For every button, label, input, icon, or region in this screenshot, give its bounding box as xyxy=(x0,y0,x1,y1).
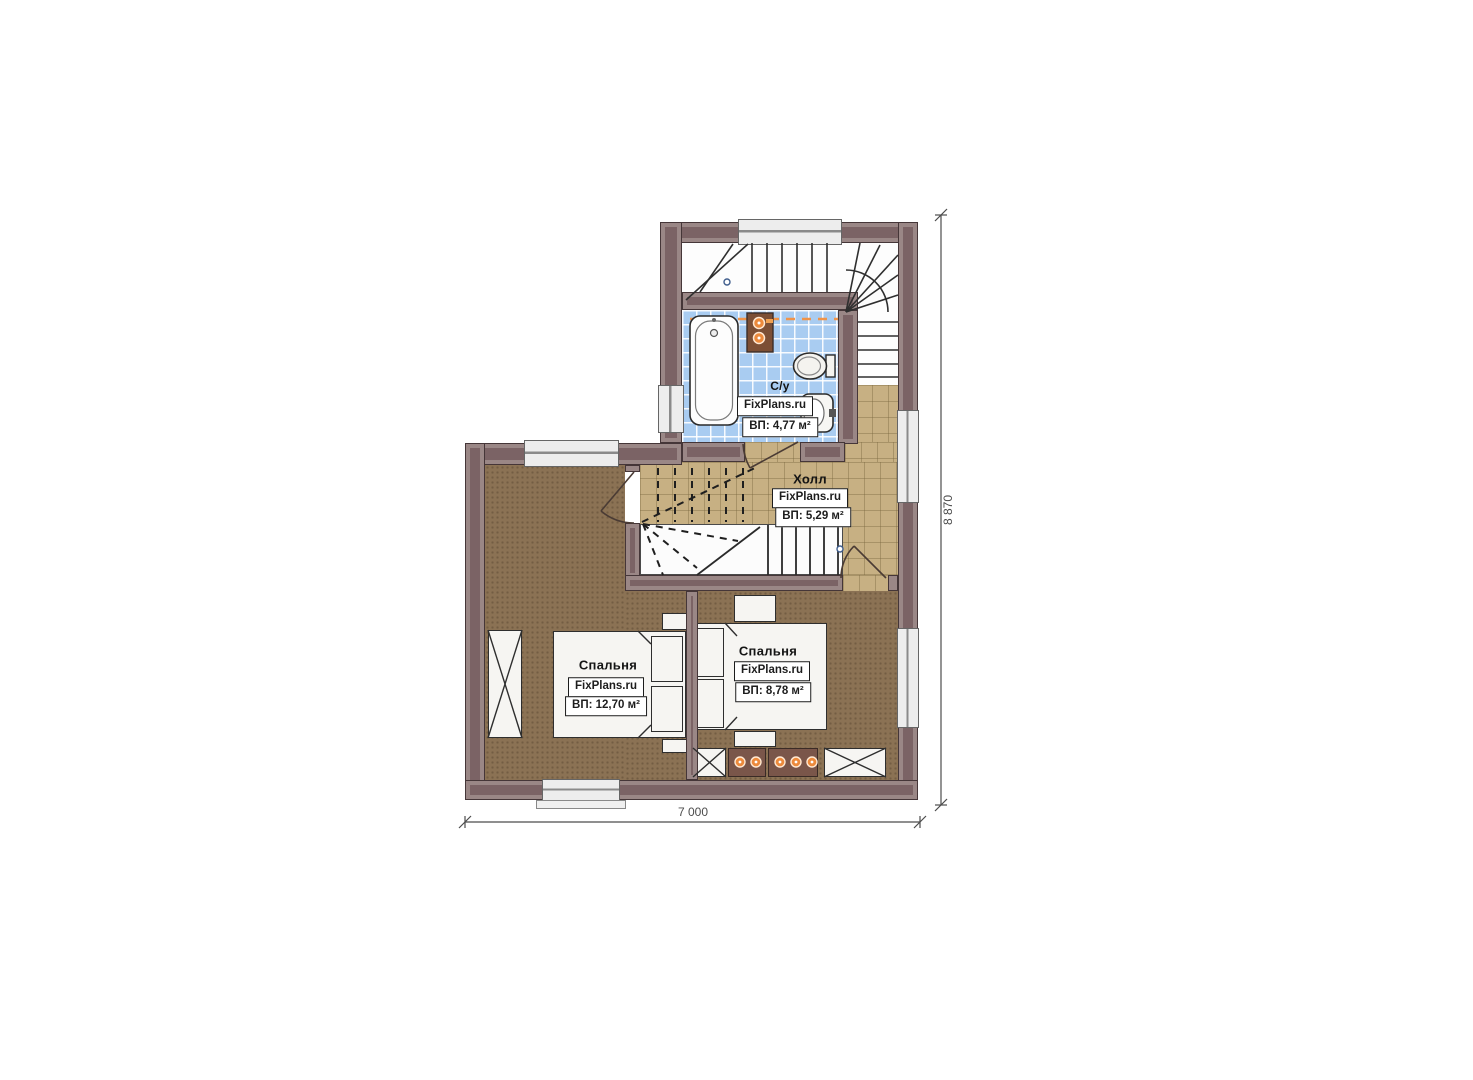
bed-pillow xyxy=(697,628,724,677)
window xyxy=(897,410,919,503)
bedroom-left-label: Спальня xyxy=(579,658,637,673)
wall-left-lower xyxy=(465,443,485,800)
hall-label: Холл xyxy=(793,472,827,487)
wall-bottom xyxy=(465,780,918,800)
bedroom-left-area: ВП: 12,70 м² xyxy=(565,696,647,716)
hall-floor-side xyxy=(845,442,898,462)
bathroom-label: С/у xyxy=(770,379,790,393)
bed-pillow xyxy=(697,679,724,728)
window-sill xyxy=(536,800,626,809)
window xyxy=(658,385,684,433)
dresser xyxy=(768,748,818,777)
wall-bedroom-separator xyxy=(686,591,698,780)
bedside-table xyxy=(734,595,776,622)
wall-bathroom-bottom-b xyxy=(800,442,845,462)
bedroom-right-watermark: FixPlans.ru xyxy=(734,661,810,681)
bed-pillow xyxy=(651,636,683,682)
bed-pillow xyxy=(651,686,683,732)
wardrobe xyxy=(488,630,522,738)
wall-bathroom-right xyxy=(838,310,858,444)
bedside-table xyxy=(662,739,688,753)
bathroom-watermark: FixPlans.ru xyxy=(737,396,813,416)
wall-hall-bottom-a xyxy=(625,575,843,591)
wall-hall-bottom-b xyxy=(888,575,898,591)
hall-watermark: FixPlans.ru xyxy=(772,488,848,508)
bathroom-area: ВП: 4,77 м² xyxy=(742,417,818,437)
staircase-middle-lower-flight xyxy=(640,524,843,575)
wall-bathroom-bottom-a xyxy=(682,442,745,462)
window xyxy=(738,219,842,245)
window xyxy=(542,779,620,801)
bedside-table xyxy=(734,731,776,747)
bedside-table xyxy=(662,613,688,630)
staircase-upper-floor xyxy=(682,243,898,292)
hall-floor-door2 xyxy=(843,575,888,591)
wall-bathroom-top xyxy=(682,292,858,310)
window xyxy=(524,440,619,467)
dimension-height: 8 870 xyxy=(941,495,955,525)
floor-plan-canvas: С/у FixPlans.ru ВП: 4,77 м² Холл FixPlan… xyxy=(0,0,1473,1080)
bedroom-right-area: ВП: 8,78 м² xyxy=(735,682,811,702)
staircase-upper-floor-right xyxy=(858,292,898,385)
wall-stair-left-a xyxy=(625,465,640,472)
wardrobe xyxy=(824,748,886,777)
hall-area: ВП: 5,29 м² xyxy=(775,507,851,527)
bedroom-left-watermark: FixPlans.ru xyxy=(568,677,644,697)
wall-stair-left-b xyxy=(625,523,640,578)
dimension-width: 7 000 xyxy=(678,805,708,819)
dresser xyxy=(728,748,766,777)
bedroom-right-label: Спальня xyxy=(739,644,797,659)
window xyxy=(897,628,919,728)
hall-floor-doorway xyxy=(745,442,800,462)
